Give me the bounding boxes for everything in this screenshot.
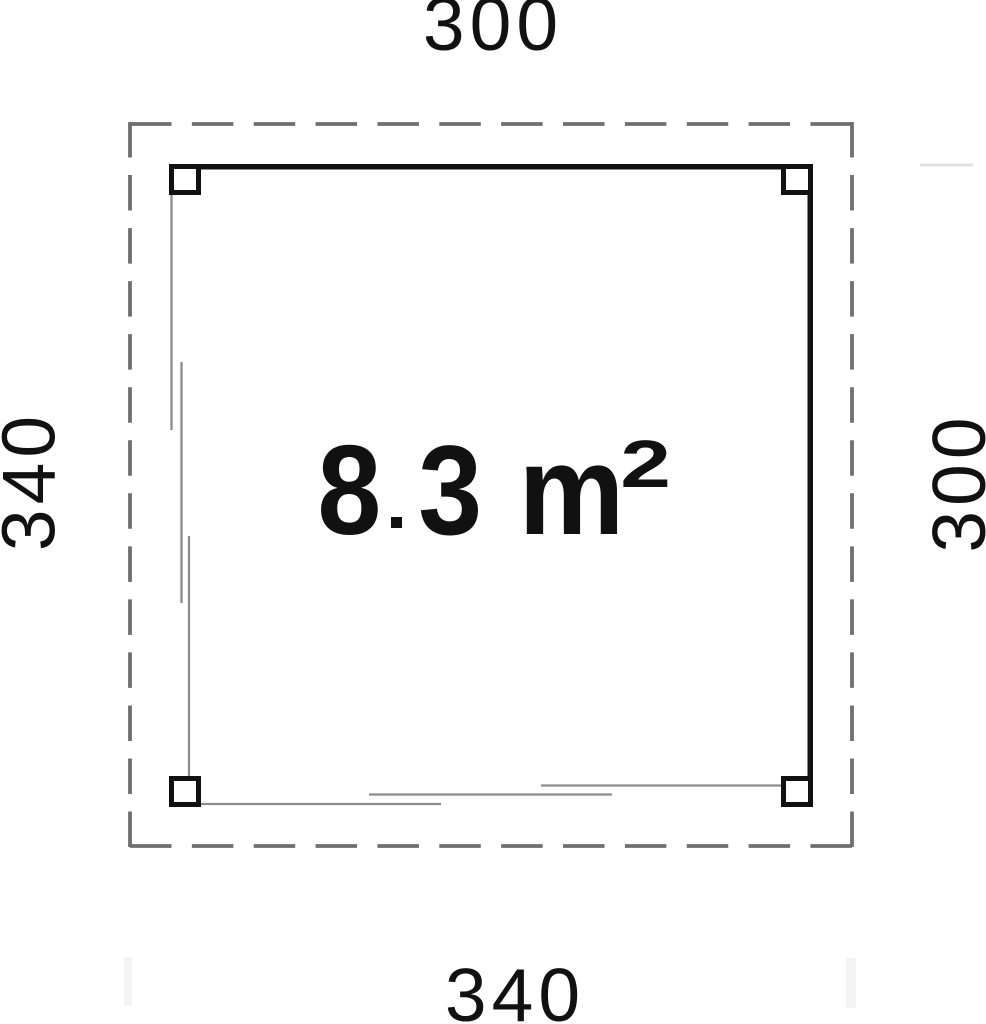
svg-text:300: 300 — [917, 412, 986, 552]
svg-text:8: 8 — [317, 419, 381, 562]
svg-text:300: 300 — [423, 0, 563, 66]
svg-text:2: 2 — [620, 427, 671, 502]
svg-text:340: 340 — [0, 411, 71, 551]
svg-text:3: 3 — [418, 419, 482, 562]
svg-text:m: m — [519, 421, 625, 562]
svg-text:340: 340 — [445, 953, 585, 1024]
